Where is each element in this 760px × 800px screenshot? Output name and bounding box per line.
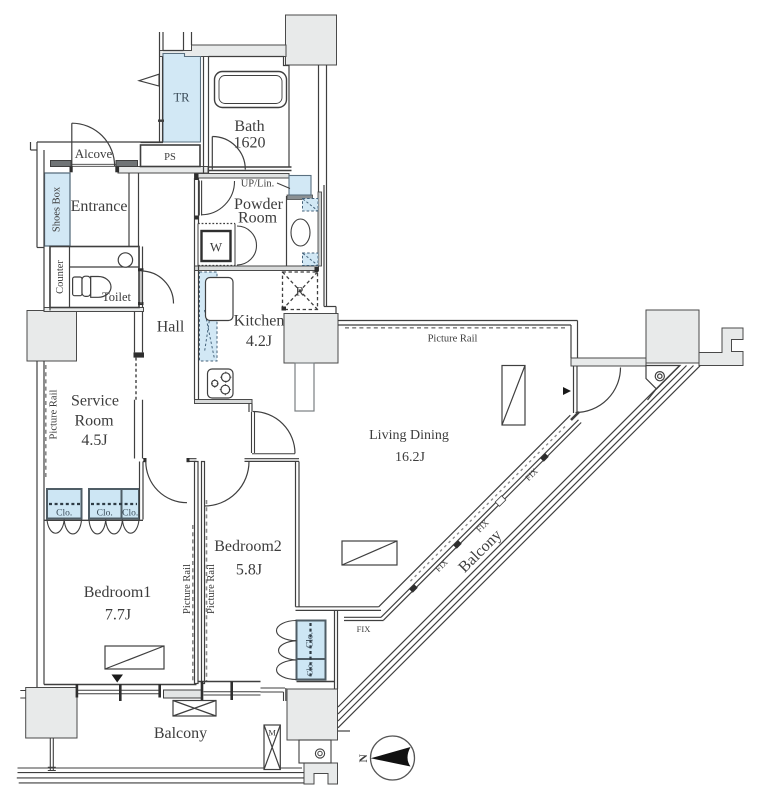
svg-text:Toilet: Toilet xyxy=(102,290,132,304)
svg-text:Bedroom2: Bedroom2 xyxy=(214,538,282,555)
svg-text:4.2J: 4.2J xyxy=(246,333,272,350)
svg-text:Counter: Counter xyxy=(55,260,66,294)
svg-text:Picture Rail: Picture Rail xyxy=(206,564,217,614)
svg-text:1620: 1620 xyxy=(234,135,266,152)
svg-text:Picture Rail: Picture Rail xyxy=(428,334,478,345)
svg-text:4.5J: 4.5J xyxy=(81,432,107,449)
svg-text:Shoes Box: Shoes Box xyxy=(51,186,62,232)
svg-text:Clo.: Clo. xyxy=(306,632,316,648)
svg-text:Clo.: Clo. xyxy=(304,662,314,676)
svg-text:TR: TR xyxy=(174,91,191,105)
svg-text:Picture Rail: Picture Rail xyxy=(48,389,59,439)
svg-text:5.8J: 5.8J xyxy=(236,562,262,579)
svg-text:Alcove: Alcove xyxy=(75,146,113,161)
svg-text:Clo.: Clo. xyxy=(122,509,138,519)
svg-text:7.7J: 7.7J xyxy=(105,607,131,624)
svg-text:Clo.: Clo. xyxy=(97,509,113,519)
svg-text:Bath: Bath xyxy=(234,118,264,135)
svg-text:UP/Lin.: UP/Lin. xyxy=(241,179,275,190)
svg-text:Service: Service xyxy=(71,393,119,410)
svg-text:M: M xyxy=(268,728,276,738)
svg-text:N: N xyxy=(358,753,370,762)
svg-text:Entrance: Entrance xyxy=(71,198,128,215)
svg-text:Kitchen: Kitchen xyxy=(234,313,285,330)
svg-text:FIX: FIX xyxy=(357,624,371,634)
svg-text:Room: Room xyxy=(74,413,114,430)
svg-text:16.2J: 16.2J xyxy=(395,450,426,465)
svg-text:Clo.: Clo. xyxy=(56,509,72,519)
svg-text:Balcony: Balcony xyxy=(154,725,207,742)
svg-text:PS: PS xyxy=(164,152,176,163)
svg-text:Picture Rail: Picture Rail xyxy=(182,564,193,614)
svg-text:W: W xyxy=(210,240,223,255)
svg-text:R: R xyxy=(296,284,305,299)
svg-text:Bedroom1: Bedroom1 xyxy=(84,584,152,601)
svg-text:Room: Room xyxy=(238,210,278,227)
svg-text:Living Dining: Living Dining xyxy=(369,428,449,443)
svg-text:Hall: Hall xyxy=(157,319,185,336)
